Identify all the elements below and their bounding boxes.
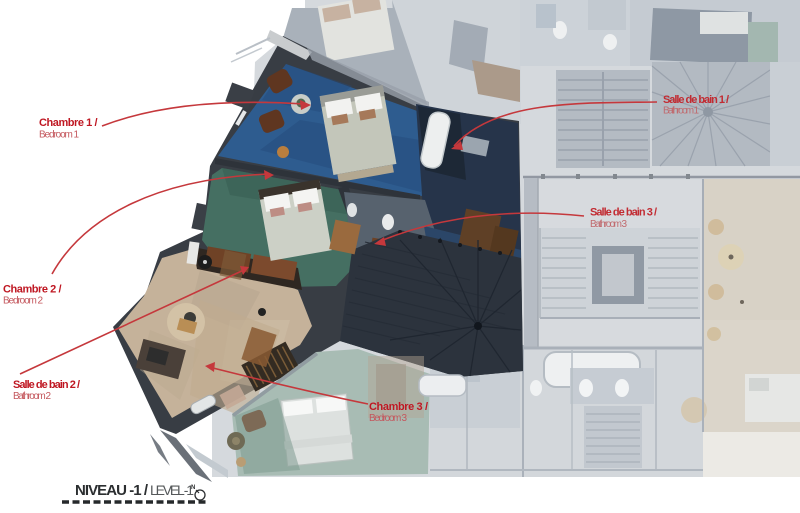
svg-text:Salle de bain 1 /: Salle de bain 1 / xyxy=(663,94,729,106)
svg-text:Bedroom 3: Bedroom 3 xyxy=(369,413,407,424)
svg-text:Chambre 2 /: Chambre 2 / xyxy=(3,284,62,296)
svg-text:Bathroom 1: Bathroom 1 xyxy=(663,106,699,117)
svg-text:Salle de bain 3 /: Salle de bain 3 / xyxy=(590,207,657,219)
svg-text:Chambre 3 /: Chambre 3 / xyxy=(369,401,428,413)
svg-text:Bathroom 2: Bathroom 2 xyxy=(13,391,51,402)
svg-text:LEVEL -1: LEVEL -1 xyxy=(150,482,194,498)
svg-text:N: N xyxy=(191,485,195,491)
svg-text:Bedroom 2: Bedroom 2 xyxy=(3,296,43,307)
svg-text:NIVEAU -1 /: NIVEAU -1 / xyxy=(75,482,149,499)
svg-text:Bathroom 3: Bathroom 3 xyxy=(590,219,627,230)
svg-text:Salle de bain 2 /: Salle de bain 2 / xyxy=(13,379,80,391)
svg-text:Bedroom 1: Bedroom 1 xyxy=(39,130,79,141)
svg-text:Chambre 1 /: Chambre 1 / xyxy=(39,117,98,129)
